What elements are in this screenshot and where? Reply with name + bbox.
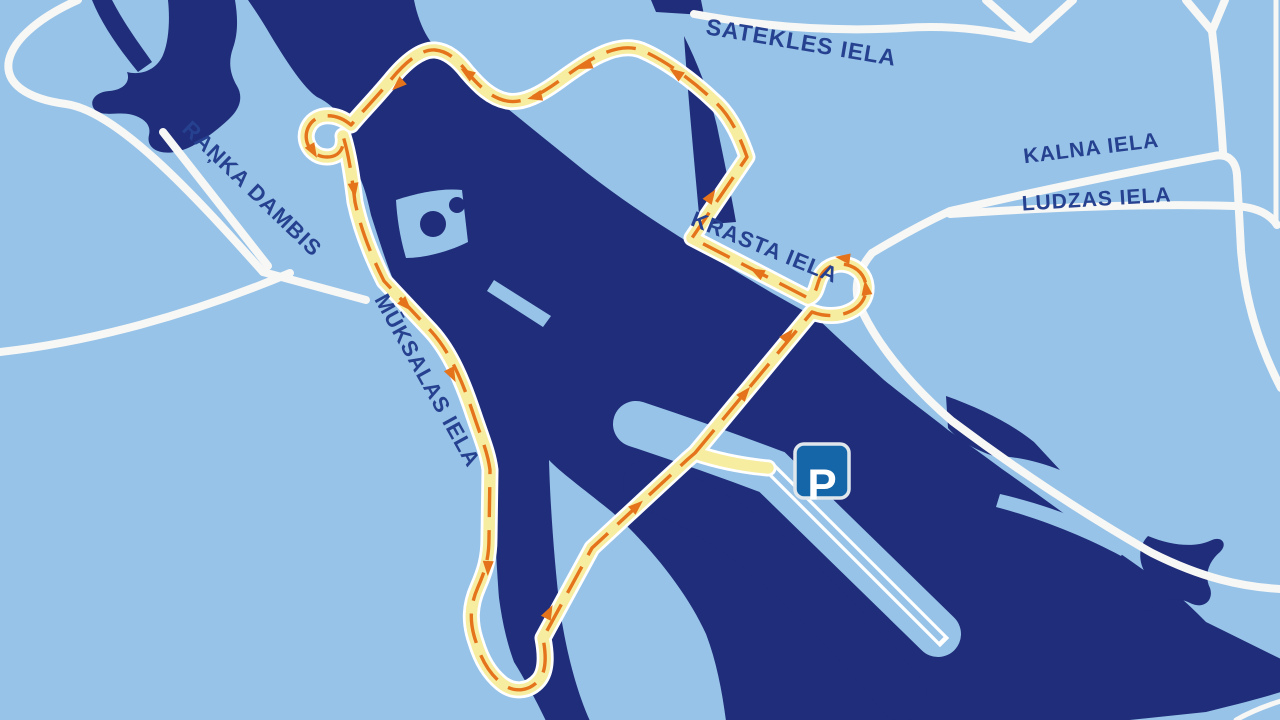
detour-route-map: SATEKLES IELA KALNA IELA LUDZAS IELA KRA… xyxy=(0,0,1280,720)
parking-sign-letter: P xyxy=(807,461,836,510)
bay-blob-small xyxy=(449,197,465,213)
map-graphic: SATEKLES IELA KALNA IELA LUDZAS IELA KRA… xyxy=(0,0,1280,720)
bay-blob xyxy=(420,211,446,237)
